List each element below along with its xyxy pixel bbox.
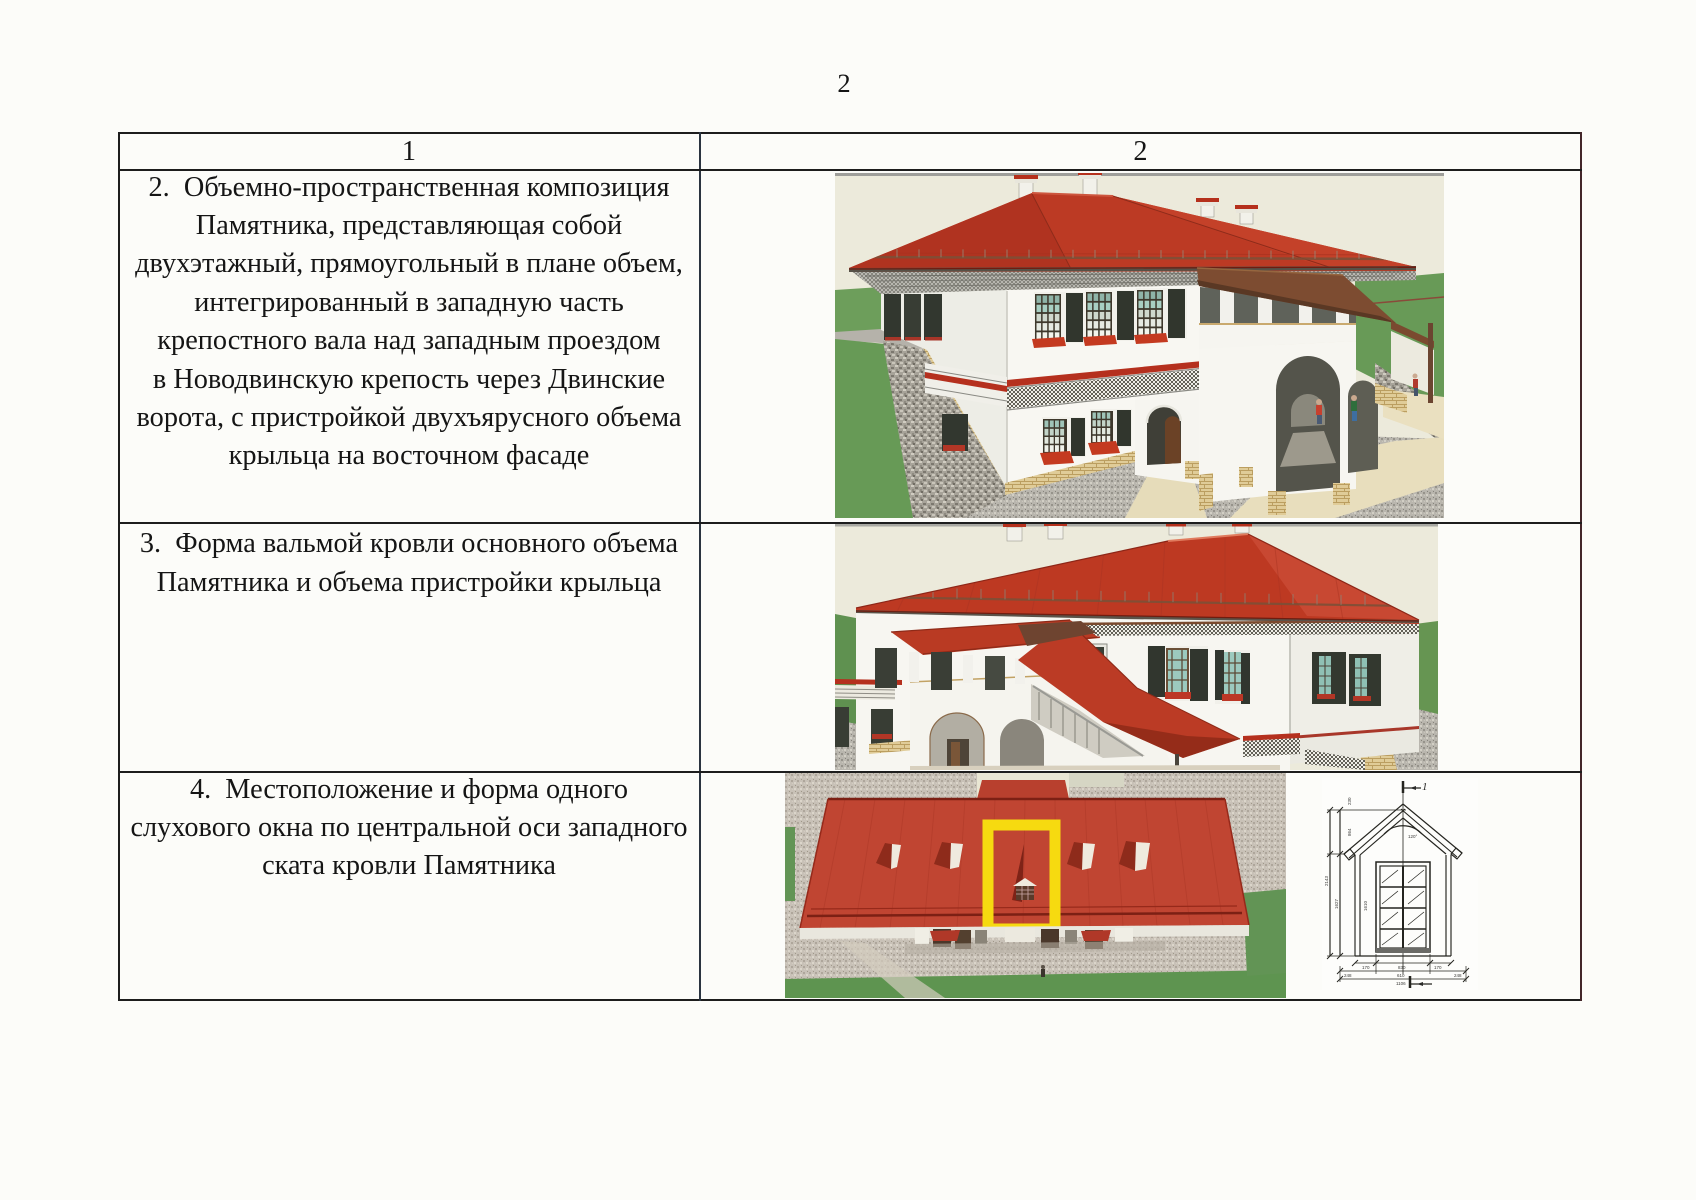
- svg-text:1627: 1627: [1334, 898, 1339, 909]
- svg-text:248: 248: [1454, 973, 1462, 978]
- svg-text:610: 610: [1397, 973, 1405, 978]
- svg-text:120°: 120°: [1408, 834, 1418, 839]
- svg-text:230: 230: [1347, 797, 1352, 805]
- svg-text:170: 170: [1434, 965, 1442, 970]
- svg-text:864: 864: [1347, 828, 1352, 836]
- svg-text:1610: 1610: [1363, 900, 1368, 911]
- svg-text:248: 248: [1344, 973, 1352, 978]
- svg-text:2143: 2143: [1324, 875, 1329, 886]
- svg-text:170: 170: [1362, 965, 1370, 970]
- svg-text:1106: 1106: [1396, 981, 1406, 986]
- svg-text:1: 1: [1422, 781, 1428, 793]
- svg-text:830: 830: [1398, 965, 1406, 970]
